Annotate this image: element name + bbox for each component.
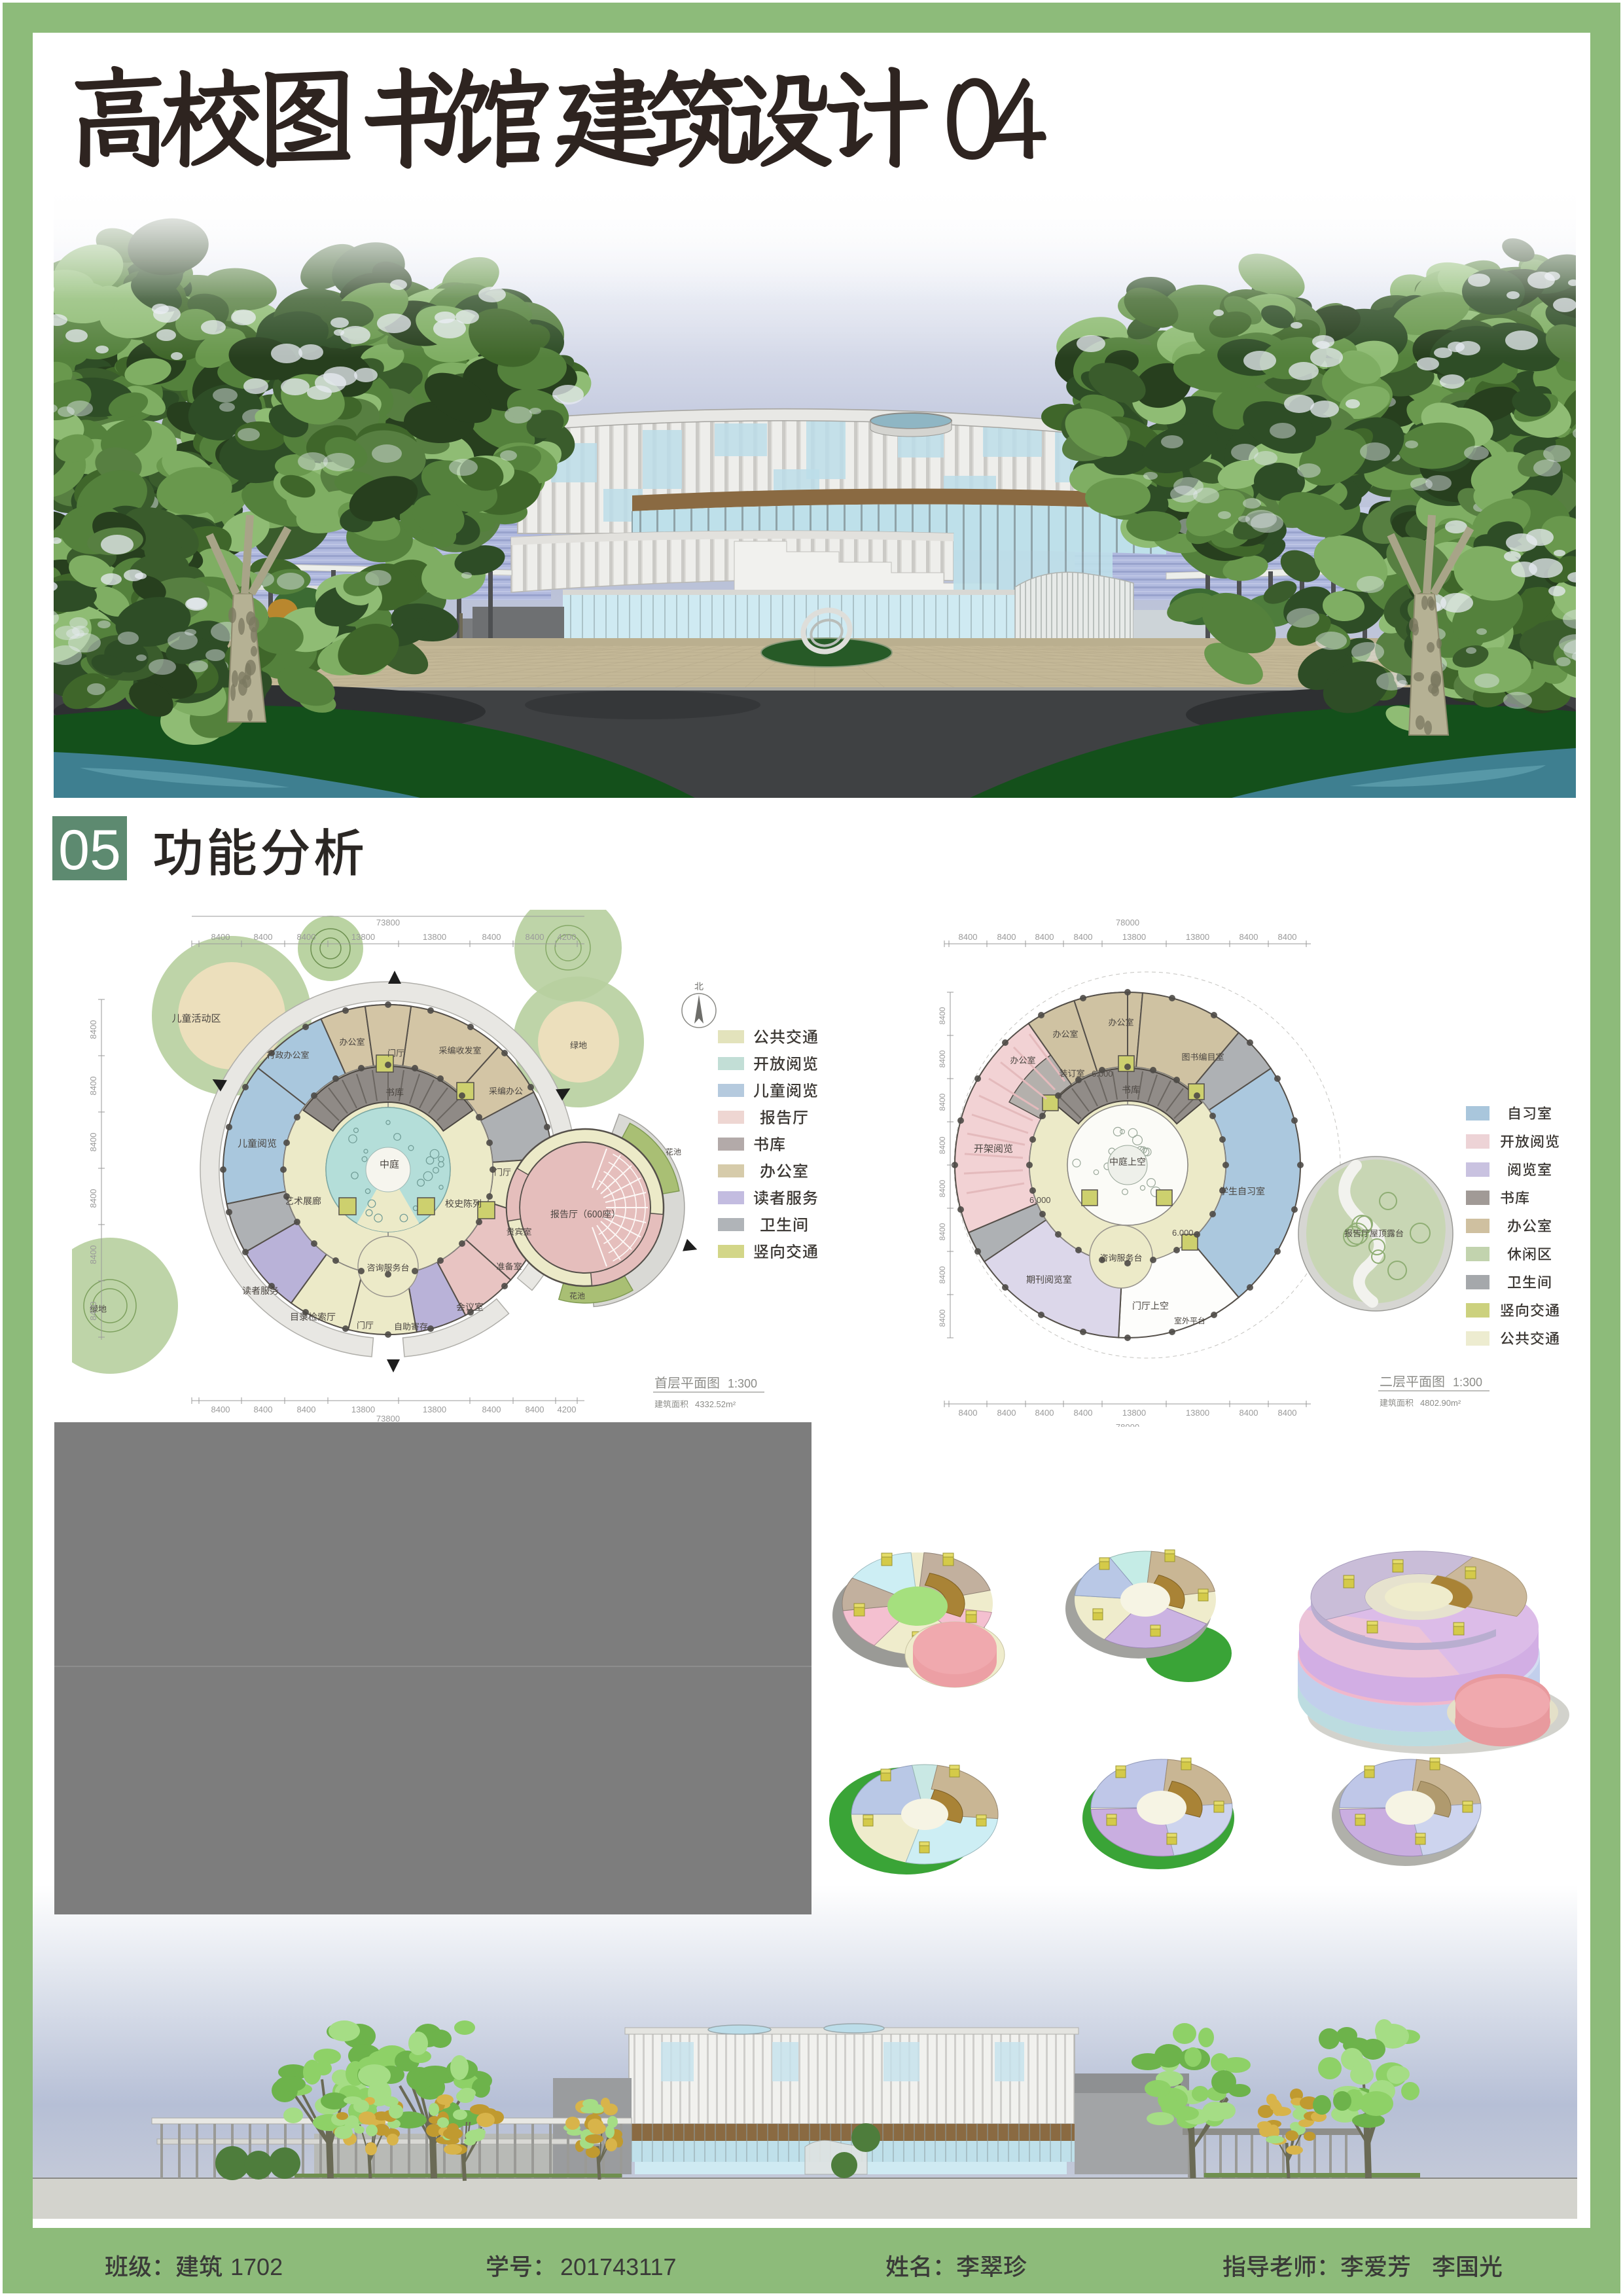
svg-text:13800: 13800 [351, 932, 375, 942]
svg-text:1:300: 1:300 [728, 1377, 757, 1390]
svg-text:78000: 78000 [1116, 918, 1139, 927]
svg-text:8400: 8400 [1240, 1408, 1258, 1418]
svg-text:78000: 78000 [1116, 1422, 1139, 1427]
svg-text:8400: 8400 [1240, 932, 1258, 942]
svg-text:8400: 8400 [959, 1408, 978, 1418]
svg-text:8400: 8400 [88, 1189, 98, 1208]
svg-text:05: 05 [58, 819, 121, 880]
svg-text:8400: 8400 [997, 932, 1016, 942]
svg-text:8400: 8400 [526, 932, 544, 942]
svg-text:8400: 8400 [1278, 1408, 1297, 1418]
svg-text:8400: 8400 [254, 1405, 273, 1414]
svg-text:8400: 8400 [88, 1077, 98, 1096]
svg-text:4200: 4200 [558, 932, 577, 942]
svg-text:13800: 13800 [1122, 932, 1146, 942]
svg-text:8400: 8400 [1278, 932, 1297, 942]
svg-text:8400: 8400 [938, 1007, 947, 1024]
svg-text:73800: 73800 [376, 918, 400, 927]
svg-text:8400: 8400 [88, 1133, 98, 1152]
svg-text:8400: 8400 [938, 1309, 947, 1327]
svg-text:8400: 8400 [211, 1405, 230, 1414]
svg-text:8400: 8400 [1035, 932, 1054, 942]
svg-text:8400: 8400 [526, 1405, 544, 1414]
svg-text:13800: 13800 [1186, 932, 1209, 942]
svg-text:8400: 8400 [254, 932, 273, 942]
svg-text:8400: 8400 [297, 932, 316, 942]
svg-text:8400: 8400 [938, 1266, 947, 1283]
svg-text:8400: 8400 [1035, 1408, 1054, 1418]
svg-text:8400: 8400 [88, 1246, 98, 1265]
svg-text:8400: 8400 [997, 1408, 1016, 1418]
svg-text:8400: 8400 [959, 932, 978, 942]
svg-text:8400: 8400 [938, 1136, 947, 1154]
svg-text:6.000: 6.000 [1029, 1195, 1051, 1205]
svg-text:13800: 13800 [1186, 1408, 1209, 1418]
svg-text:4332.52m²: 4332.52m² [695, 1399, 736, 1409]
svg-text:6.000: 6.000 [1172, 1228, 1194, 1238]
svg-text:4200: 4200 [558, 1405, 577, 1414]
svg-text:8400: 8400 [88, 1302, 98, 1321]
svg-text:4802.90m²: 4802.90m² [1420, 1398, 1461, 1408]
svg-text:8400: 8400 [938, 1093, 947, 1111]
svg-text:1702: 1702 [230, 2253, 283, 2280]
svg-text:13800: 13800 [423, 1405, 446, 1414]
svg-text:8400: 8400 [211, 932, 230, 942]
svg-text:8400: 8400 [88, 1020, 98, 1039]
svg-text:8400: 8400 [938, 1179, 947, 1197]
svg-text:8400: 8400 [482, 1405, 501, 1414]
svg-text:8400: 8400 [297, 1405, 316, 1414]
svg-text:8400: 8400 [482, 932, 501, 942]
svg-text:13800: 13800 [1122, 1408, 1146, 1418]
svg-text:8400: 8400 [938, 1050, 947, 1067]
svg-text:8400: 8400 [1074, 1408, 1093, 1418]
svg-text:13800: 13800 [351, 1405, 375, 1414]
svg-text:8400: 8400 [938, 1223, 947, 1240]
svg-text:201743117: 201743117 [560, 2253, 677, 2280]
svg-text:13800: 13800 [423, 932, 446, 942]
svg-text:6.000: 6.000 [1092, 1069, 1113, 1079]
svg-text:8400: 8400 [1074, 932, 1093, 942]
